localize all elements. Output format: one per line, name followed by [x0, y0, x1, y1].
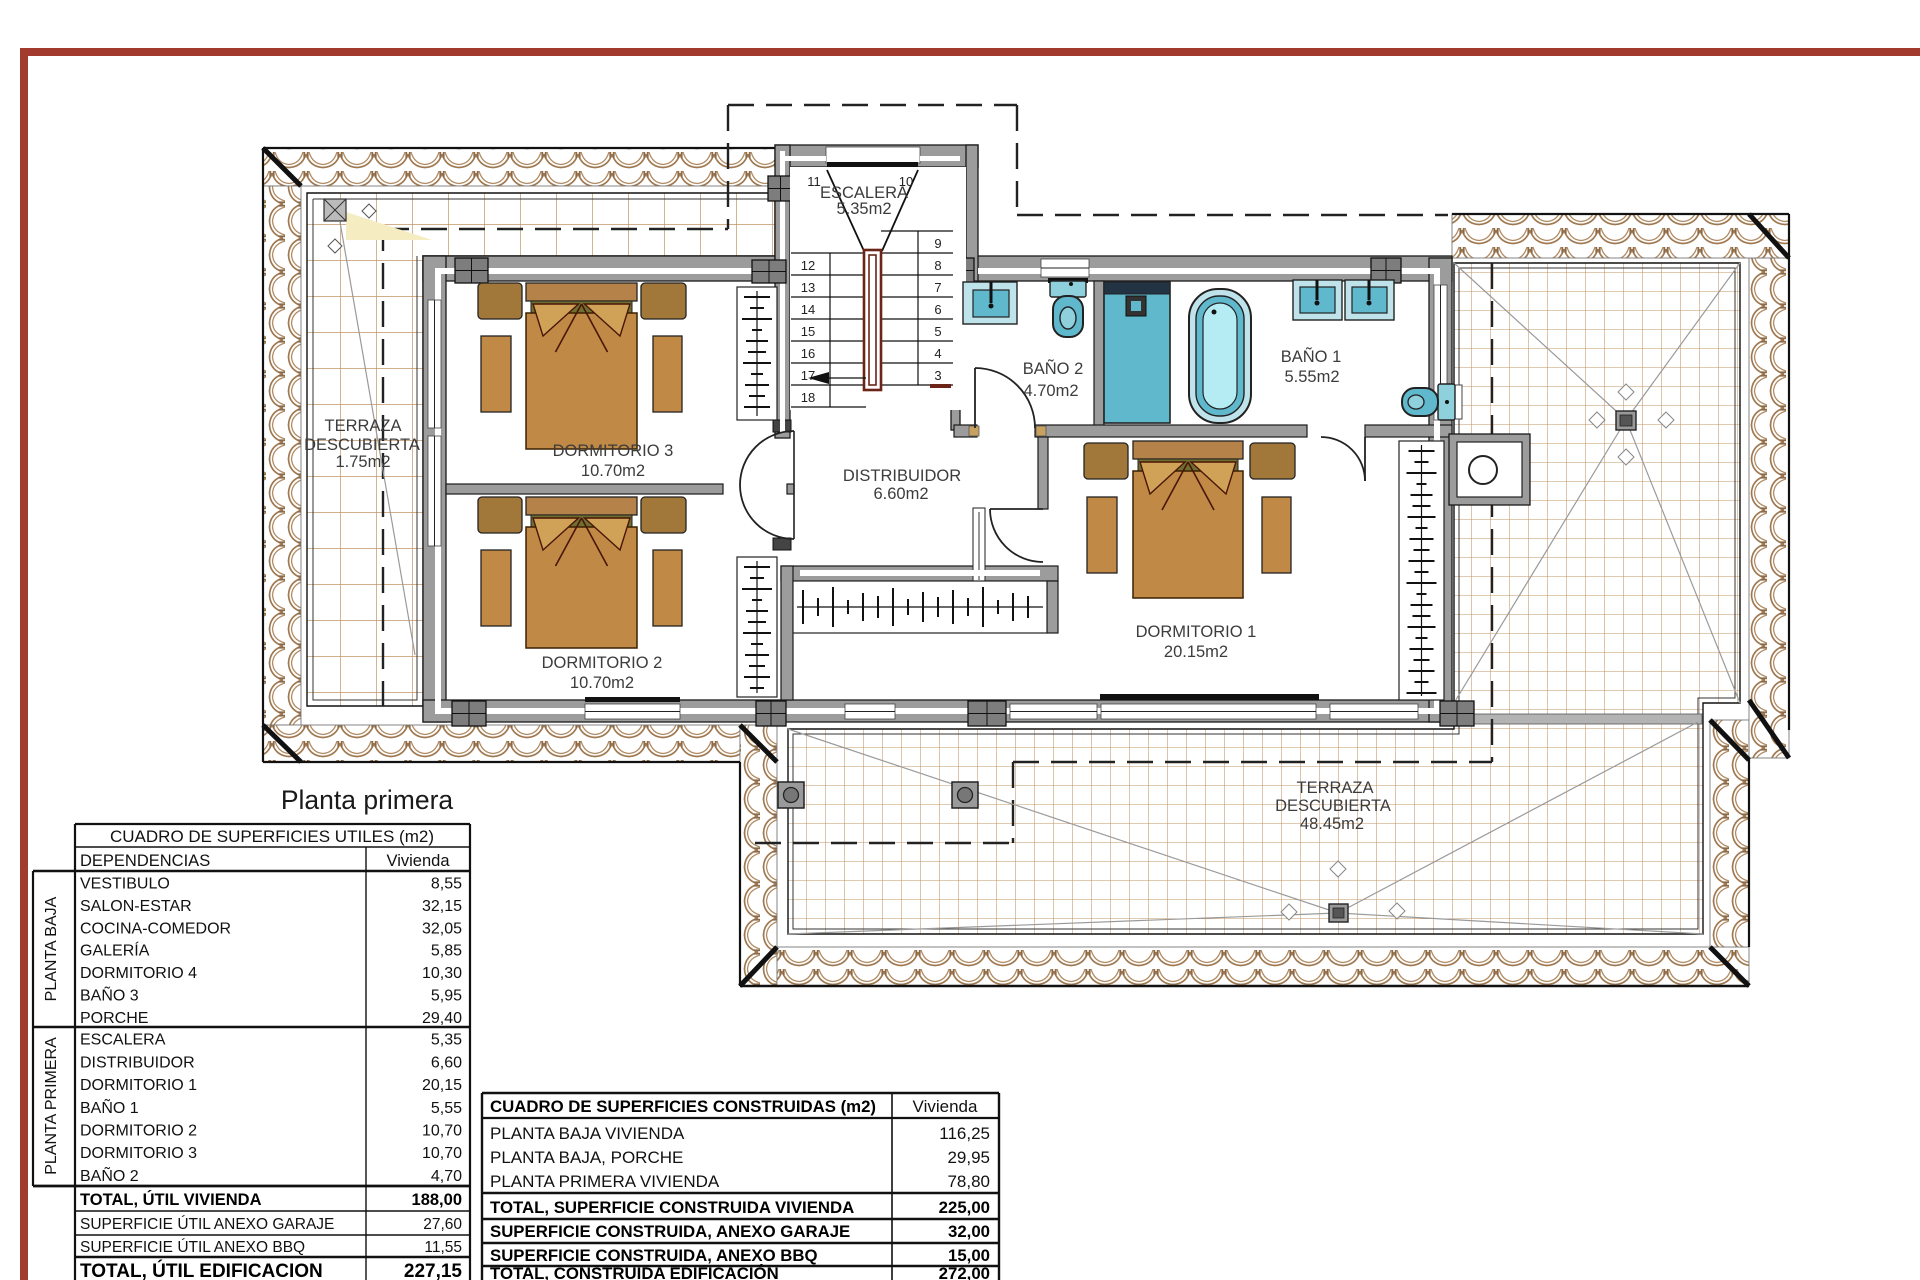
svg-text:Vivienda: Vivienda	[387, 852, 451, 870]
svg-text:20,15: 20,15	[422, 1077, 462, 1094]
svg-text:20.15m2: 20.15m2	[1164, 643, 1228, 661]
svg-text:SALON-ESTAR: SALON-ESTAR	[80, 898, 192, 915]
svg-text:5,85: 5,85	[431, 943, 462, 960]
svg-text:5,35: 5,35	[431, 1032, 462, 1049]
svg-text:12: 12	[801, 258, 815, 273]
svg-text:4,70: 4,70	[431, 1168, 462, 1185]
svg-text:DORMITORIO 3: DORMITORIO 3	[553, 442, 674, 460]
svg-text:BAÑO 2: BAÑO 2	[80, 1165, 139, 1185]
svg-text:PLANTA BAJA, PORCHE: PLANTA BAJA, PORCHE	[490, 1148, 683, 1167]
svg-text:3: 3	[934, 368, 941, 383]
svg-text:1.75m2: 1.75m2	[335, 453, 390, 471]
svg-text:14: 14	[801, 302, 815, 317]
svg-text:32,15: 32,15	[422, 898, 462, 915]
svg-text:13: 13	[801, 280, 815, 295]
svg-text:DORMITORIO 1: DORMITORIO 1	[80, 1077, 197, 1094]
svg-text:VESTIBULO: VESTIBULO	[80, 875, 170, 892]
svg-text:SUPERFICIE ÚTIL ANEXO BBQ: SUPERFICIE ÚTIL ANEXO BBQ	[80, 1239, 305, 1256]
svg-text:TOTAL, SUPERFICIE CONSTRUIDA V: TOTAL, SUPERFICIE CONSTRUIDA VIVIENDA	[490, 1198, 854, 1217]
svg-text:SUPERFICIE CONSTRUIDA, ANEXO B: SUPERFICIE CONSTRUIDA, ANEXO BBQ	[490, 1246, 818, 1265]
svg-text:32,00: 32,00	[948, 1222, 990, 1241]
svg-text:6: 6	[934, 302, 941, 317]
svg-text:225,00: 225,00	[939, 1198, 990, 1217]
svg-text:8: 8	[934, 258, 941, 273]
svg-text:BAÑO 1: BAÑO 1	[1281, 346, 1342, 366]
svg-text:16: 16	[801, 346, 815, 361]
svg-text:PLANTA PRIMERA: PLANTA PRIMERA	[43, 1037, 60, 1175]
svg-text:8,55: 8,55	[431, 875, 462, 892]
svg-text:10.70m2: 10.70m2	[570, 674, 634, 692]
svg-text:6.60m2: 6.60m2	[873, 485, 928, 503]
svg-text:116,25: 116,25	[939, 1124, 990, 1143]
svg-text:PLANTA PRIMERA VIVIENDA: PLANTA PRIMERA VIVIENDA	[490, 1172, 720, 1191]
svg-text:78,80: 78,80	[947, 1172, 990, 1191]
svg-text:9: 9	[934, 236, 941, 251]
svg-text:COCINA-COMEDOR: COCINA-COMEDOR	[80, 920, 231, 937]
svg-text:TOTAL, ÚTIL EDIFICACION: TOTAL, ÚTIL EDIFICACION	[80, 1260, 323, 1280]
svg-text:DISTRIBUIDOR: DISTRIBUIDOR	[843, 467, 961, 485]
svg-text:7: 7	[934, 280, 941, 295]
svg-text:6,60: 6,60	[431, 1054, 462, 1071]
svg-text:TOTAL, CONSTRUIDA EDIFICACIÓN: TOTAL, CONSTRUIDA EDIFICACIÓN	[490, 1264, 779, 1280]
svg-text:18: 18	[801, 390, 815, 405]
svg-text:15,00: 15,00	[948, 1246, 990, 1265]
svg-text:4: 4	[934, 346, 941, 361]
svg-text:10.70m2: 10.70m2	[581, 462, 645, 480]
svg-text:DISTRIBUIDOR: DISTRIBUIDOR	[80, 1054, 195, 1071]
svg-text:27,60: 27,60	[423, 1216, 462, 1233]
svg-text:10,70: 10,70	[422, 1145, 462, 1162]
svg-text:DEPENDENCIAS: DEPENDENCIAS	[80, 852, 210, 870]
svg-text:Planta primera: Planta primera	[281, 785, 454, 815]
svg-text:TERRAZA: TERRAZA	[1296, 779, 1373, 797]
svg-text:17: 17	[801, 368, 815, 383]
svg-text:4.70m2: 4.70m2	[1023, 382, 1078, 400]
svg-text:29,40: 29,40	[422, 1010, 462, 1027]
svg-text:DORMITORIO 3: DORMITORIO 3	[80, 1145, 197, 1162]
svg-text:DORMITORIO 4: DORMITORIO 4	[80, 965, 197, 982]
svg-text:DORMITORIO 1: DORMITORIO 1	[1136, 623, 1257, 641]
svg-text:SUPERFICIE ÚTIL ANEXO GARAJE: SUPERFICIE ÚTIL ANEXO GARAJE	[80, 1216, 334, 1233]
svg-text:ESCALERA: ESCALERA	[80, 1032, 166, 1049]
svg-text:DORMITORIO 2: DORMITORIO 2	[80, 1123, 197, 1140]
svg-text:188,00: 188,00	[412, 1191, 462, 1209]
svg-text:BAÑO 1: BAÑO 1	[80, 1097, 139, 1117]
svg-text:15: 15	[801, 324, 815, 339]
svg-text:PORCHE: PORCHE	[80, 1010, 148, 1027]
svg-text:29,95: 29,95	[947, 1148, 990, 1167]
svg-text:TERRAZA: TERRAZA	[324, 417, 401, 435]
svg-text:PLANTA BAJA VIVIENDA: PLANTA BAJA VIVIENDA	[490, 1124, 685, 1143]
svg-text:BAÑO 3: BAÑO 3	[80, 985, 139, 1005]
svg-text:272,00: 272,00	[939, 1264, 990, 1280]
svg-text:BAÑO 2: BAÑO 2	[1023, 358, 1084, 378]
svg-text:48.45m2: 48.45m2	[1300, 815, 1364, 833]
svg-text:5,95: 5,95	[431, 988, 462, 1005]
svg-text:CUADRO DE SUPERFICIES UTILES (: CUADRO DE SUPERFICIES UTILES (m2)	[110, 827, 434, 846]
svg-text:DESCUBIERTA: DESCUBIERTA	[304, 436, 420, 454]
svg-text:5,55: 5,55	[431, 1100, 462, 1117]
svg-text:5.55m2: 5.55m2	[1284, 368, 1339, 386]
svg-text:5: 5	[934, 324, 941, 339]
svg-text:CUADRO DE SUPERFICIES CONSTRUI: CUADRO DE SUPERFICIES CONSTRUIDAS (m2)	[490, 1097, 876, 1116]
svg-text:DORMITORIO 2: DORMITORIO 2	[542, 654, 663, 672]
svg-text:DESCUBIERTA: DESCUBIERTA	[1275, 797, 1391, 815]
svg-text:11,55: 11,55	[424, 1239, 462, 1256]
svg-text:PLANTA BAJA: PLANTA BAJA	[43, 896, 60, 1001]
svg-text:GALERÍA: GALERÍA	[80, 941, 150, 960]
svg-text:10,30: 10,30	[422, 965, 462, 982]
svg-text:10,70: 10,70	[422, 1123, 462, 1140]
svg-text:SUPERFICIE CONSTRUIDA, ANEXO G: SUPERFICIE CONSTRUIDA, ANEXO GARAJE	[490, 1222, 850, 1241]
svg-text:11: 11	[807, 174, 821, 189]
svg-text:227,15: 227,15	[404, 1261, 463, 1280]
svg-text:32,05: 32,05	[422, 920, 462, 937]
svg-text:TOTAL, ÚTIL VIVIENDA: TOTAL, ÚTIL VIVIENDA	[80, 1190, 262, 1209]
svg-text:5.35m2: 5.35m2	[836, 200, 891, 218]
svg-text:Vivienda: Vivienda	[913, 1097, 978, 1116]
